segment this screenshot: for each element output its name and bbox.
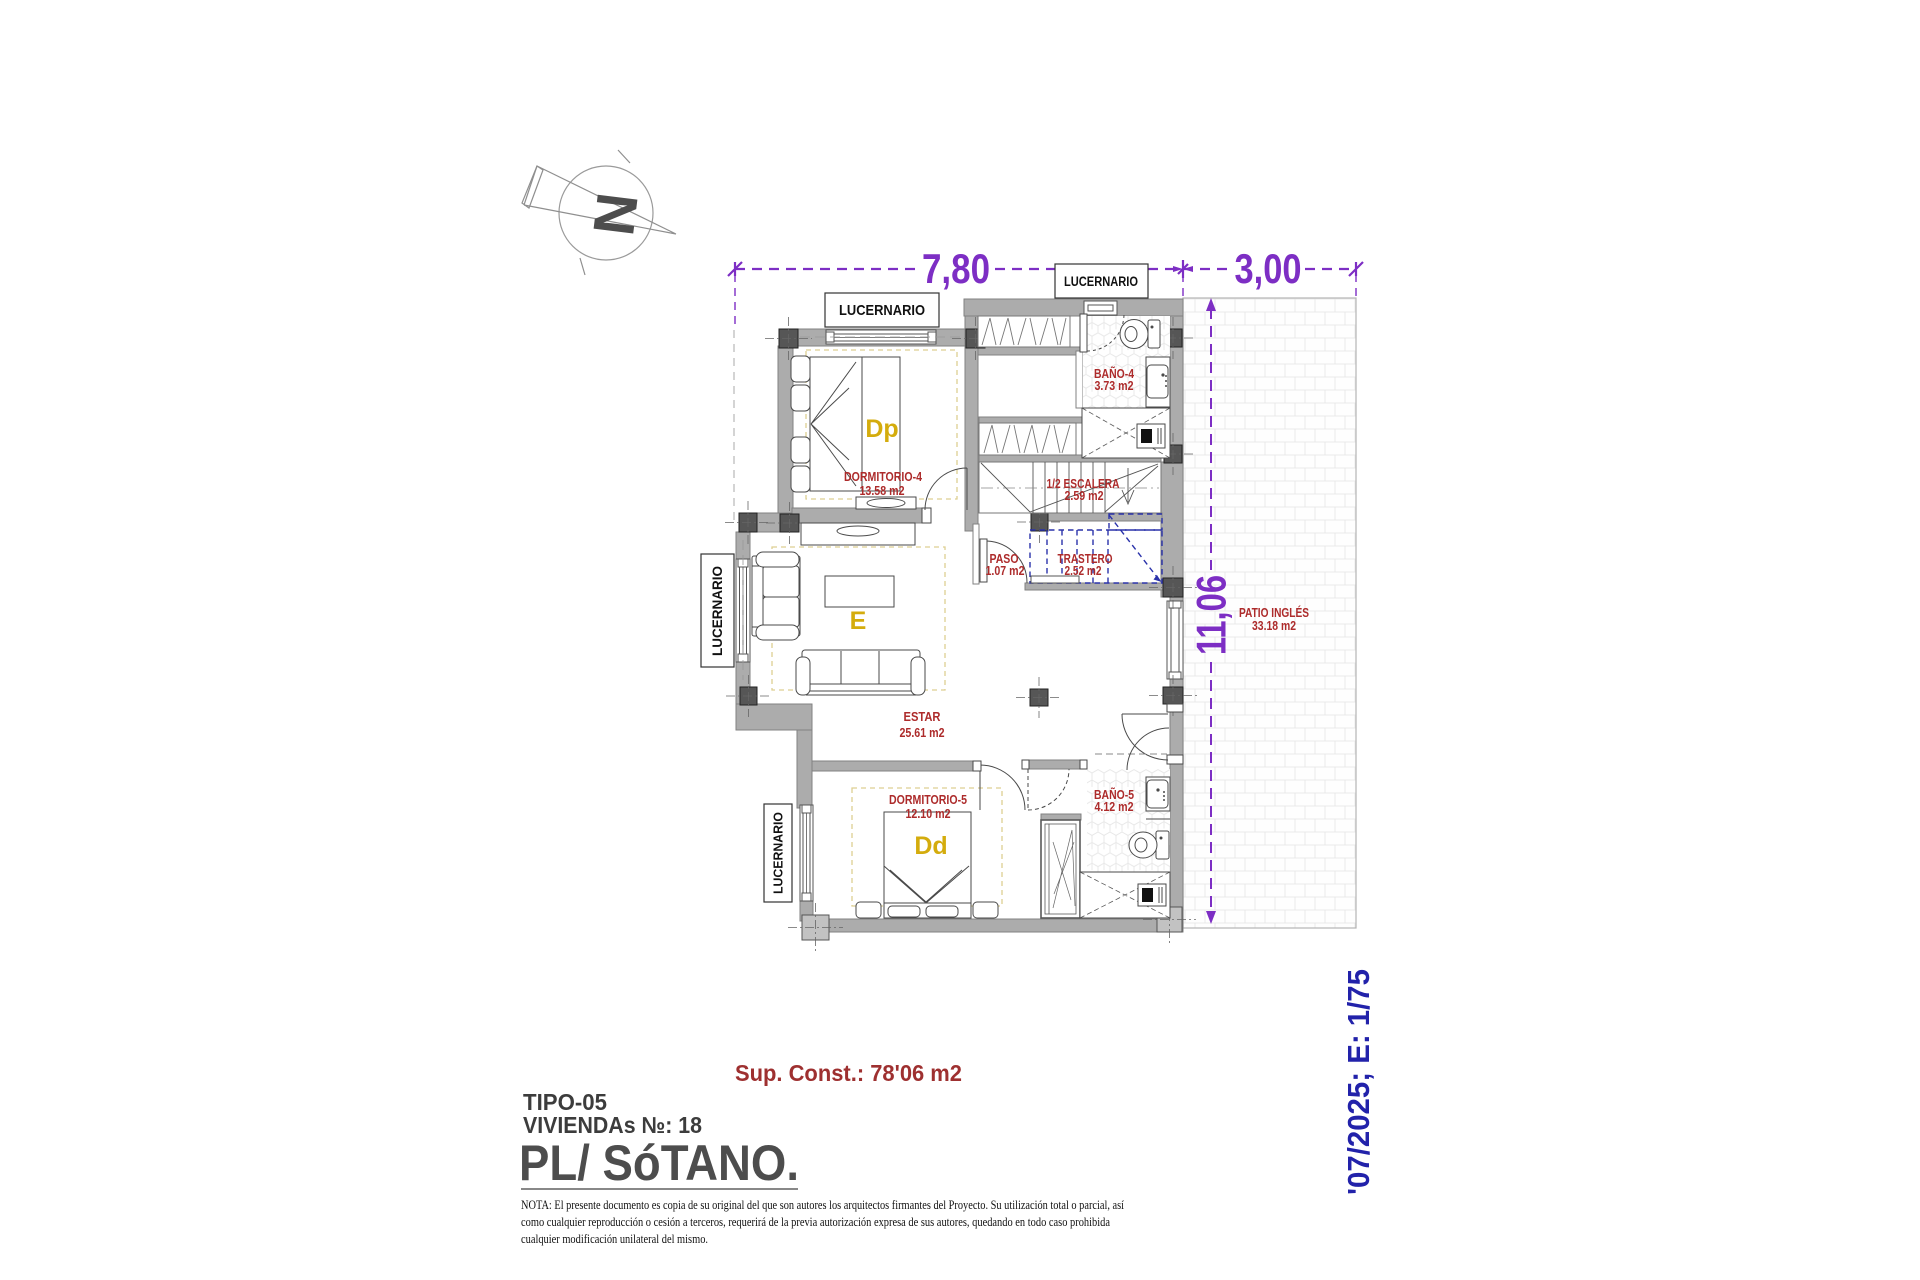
svg-text:11,06: 11,06: [1188, 575, 1235, 655]
svg-text:1.07 m2: 1.07 m2: [986, 563, 1025, 578]
svg-text:DORMITORIO-5: DORMITORIO-5: [889, 792, 967, 807]
svg-text:13.58 m2: 13.58 m2: [860, 483, 905, 498]
svg-text:12.10 m2: 12.10 m2: [906, 806, 951, 821]
svg-text:3.73 m2: 3.73 m2: [1095, 378, 1134, 393]
svg-text:E: E: [850, 607, 867, 635]
svg-text:'07/2025; E: 1/75: '07/2025; E: 1/75: [1341, 969, 1376, 1195]
svg-text:2.52 m2: 2.52 m2: [1065, 563, 1102, 578]
svg-text:Sup. Const.: 78'06 m2: Sup. Const.: 78'06 m2: [735, 1060, 962, 1086]
svg-text:25.61 m2: 25.61 m2: [900, 725, 945, 740]
svg-text:como cualquier reproducción o: como cualquier reproducción o cesión a t…: [521, 1214, 1110, 1229]
svg-text:LUCERNARIO: LUCERNARIO: [771, 812, 786, 894]
svg-text:PL/ SóTANO.: PL/ SóTANO.: [519, 1135, 799, 1191]
svg-text:DORMITORIO-4: DORMITORIO-4: [844, 469, 923, 484]
svg-text:LUCERNARIO: LUCERNARIO: [709, 566, 725, 656]
svg-text:NOTA: El presente documento es: NOTA: El presente documento es copia de …: [521, 1197, 1124, 1212]
svg-text:N: N: [580, 189, 650, 238]
svg-text:33.18 m2: 33.18 m2: [1252, 618, 1296, 633]
svg-text:Dd: Dd: [914, 832, 947, 860]
svg-text:ESTAR: ESTAR: [904, 709, 942, 724]
svg-text:7,80: 7,80: [922, 245, 990, 292]
svg-text:3,00: 3,00: [1235, 245, 1302, 292]
svg-text:4.12 m2: 4.12 m2: [1095, 799, 1134, 814]
svg-text:2.59 m2: 2.59 m2: [1065, 488, 1104, 503]
svg-text:LUCERNARIO: LUCERNARIO: [839, 302, 925, 319]
svg-text:cualquier modificación unilate: cualquier modificación unilateral del mi…: [521, 1231, 708, 1246]
svg-text:LUCERNARIO: LUCERNARIO: [1064, 274, 1138, 289]
svg-text:Dp: Dp: [865, 415, 898, 443]
